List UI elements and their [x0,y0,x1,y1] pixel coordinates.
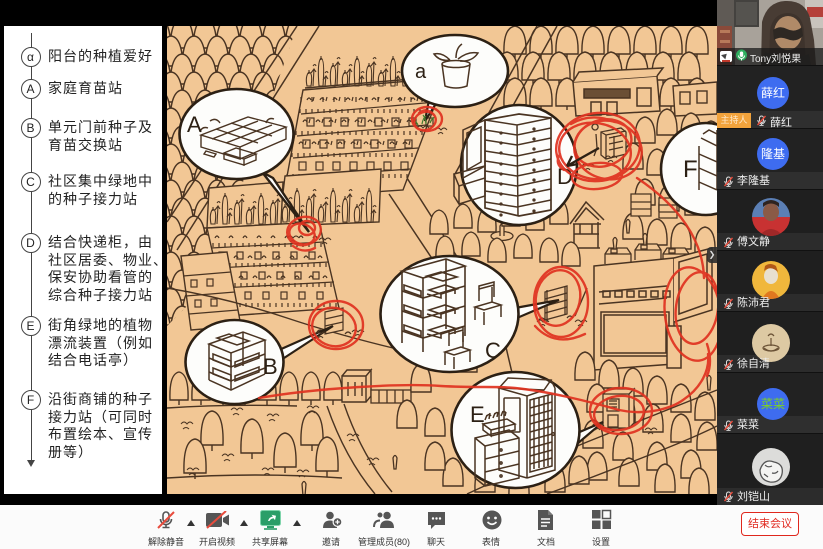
svg-text:E: E [470,402,485,427]
svg-text:A: A [187,112,202,137]
svg-text:C: C [485,338,501,363]
svg-text:B: B [263,354,278,379]
svg-text:F: F [683,156,698,183]
svg-text:a: a [415,61,427,83]
